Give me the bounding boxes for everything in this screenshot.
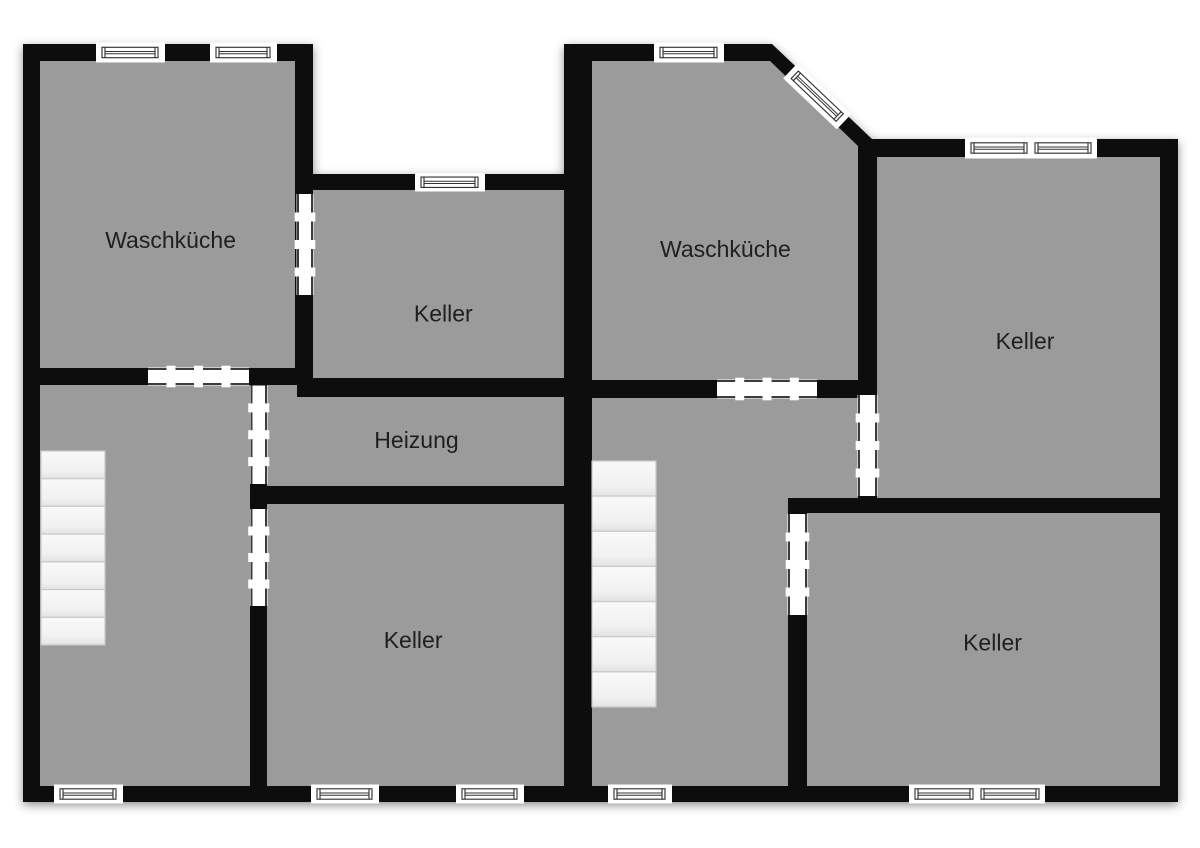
- svg-text:Keller: Keller: [414, 301, 473, 327]
- svg-text:Keller: Keller: [996, 328, 1055, 354]
- svg-text:Keller: Keller: [384, 627, 443, 653]
- svg-text:Heizung: Heizung: [374, 427, 458, 453]
- svg-text:Waschküche: Waschküche: [105, 227, 236, 253]
- svg-text:Keller: Keller: [963, 630, 1022, 656]
- svg-text:Waschküche: Waschküche: [660, 236, 791, 262]
